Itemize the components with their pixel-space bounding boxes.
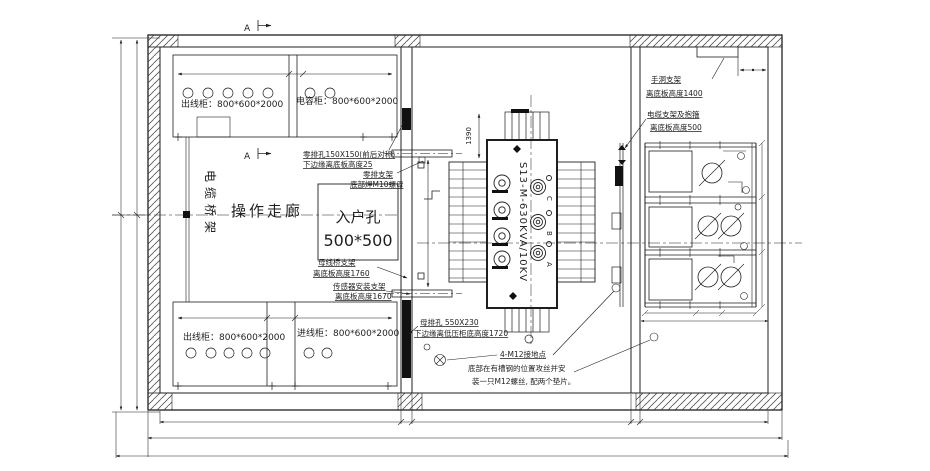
- label-cabinet-top-right: 电容柜：800*600*2000: [296, 95, 399, 107]
- note-sensor-bracket-2: 离底板高度1670: [335, 291, 392, 301]
- radiator-left: [449, 162, 487, 282]
- note-hand-hole-2: 离底板高度1400: [646, 88, 703, 98]
- note-busbar-bridge-2: 离底板高度1760: [313, 268, 370, 278]
- note-grounding-1: 4-M12接地点: [500, 349, 546, 359]
- label-cabinet-top-left: 出线柜：800*600*2000: [181, 98, 284, 110]
- bay1-cable-holes: [699, 151, 750, 194]
- bracket-step-symbol: [424, 191, 440, 199]
- cabinet-vent-circles-bottom: [186, 348, 332, 358]
- section-letter-top: A: [244, 24, 251, 34]
- cable-clamp: [615, 166, 623, 186]
- label-corridor: 操作走廊: [231, 202, 303, 220]
- label-cable-tray-vertical: 电缆桥架: [203, 170, 217, 238]
- section-marker-A-top: A: [244, 20, 271, 34]
- radiator-right: [557, 162, 595, 282]
- rail-ticks: [660, 141, 720, 309]
- note-zero-bar-bracket-1: 零排支架: [363, 169, 393, 179]
- note-cable-bracket-2: 离底板高度500: [650, 122, 702, 132]
- note-sensor-bracket-1: 传感器安装支架: [333, 281, 386, 291]
- hv-cable-bays: [641, 140, 768, 321]
- note-grounding-2: 底部在有槽钢的位置攻丝并安: [468, 363, 566, 373]
- bay2-cable-holes: [695, 204, 748, 250]
- zero-bar-opening: [402, 108, 411, 130]
- note-zero-bar-bracket-2: 底部焊M10螺母: [350, 179, 404, 189]
- note-cable-bracket-1: 电缆支架及抱箍: [647, 109, 700, 119]
- substation-plan-drawing: 出线柜：800*600*2000 电容柜：800*600*2000 出线柜：80…: [0, 0, 930, 471]
- label-cabinet-bottom-left: 出线柜：800*600*2000: [183, 331, 286, 343]
- hv-bushings: [531, 176, 552, 261]
- wall-brackets: [384, 150, 462, 297]
- hv-cable-stub-top: [505, 109, 549, 140]
- section-marker-A-mid: A: [244, 148, 271, 162]
- note-zero-bar-hole-1: 零排孔150X150(前后对称): [303, 149, 395, 159]
- hand-hole-bracket: [697, 47, 738, 57]
- busbar-opening-550x230: [402, 300, 411, 378]
- lv-cable-stub-bottom: [505, 308, 549, 343]
- note-busbar-hole-2: 下边缘离低压柜底高度1720: [414, 328, 508, 338]
- cad-canvas: 出线柜：800*600*2000 电容柜：800*600*2000 出线柜：80…: [0, 0, 930, 471]
- bay3-cable-holes: [695, 256, 748, 300]
- note-busbar-bridge-1: 母线桥支架: [318, 257, 356, 267]
- label-cabinet-bottom-right: 进线柜：800*600*2000: [297, 327, 400, 339]
- label-phase-b: B: [545, 231, 553, 236]
- cable-support-rail: [612, 143, 626, 307]
- label-entry-hole-name: 入户孔: [335, 208, 380, 226]
- note-busbar-hole-1: 母排孔 550X230: [420, 317, 479, 327]
- dim-1390: 1390: [465, 127, 473, 145]
- label-transformer-model: S13-M-630KVA/10KV: [517, 162, 528, 282]
- label-entry-hole-size: 500*500: [323, 231, 392, 250]
- label-phase-a: A: [545, 262, 553, 267]
- lv-bushings: [492, 175, 510, 269]
- note-hand-hole-1: 手洞支架: [651, 74, 681, 84]
- section-letter-mid: A: [244, 152, 251, 162]
- label-phase-c: C: [545, 196, 553, 201]
- note-zero-bar-hole-2: 下边缘离底板高度25: [303, 159, 373, 169]
- note-grounding-3: 装一只M12螺丝, 配两个垫片。: [472, 376, 575, 386]
